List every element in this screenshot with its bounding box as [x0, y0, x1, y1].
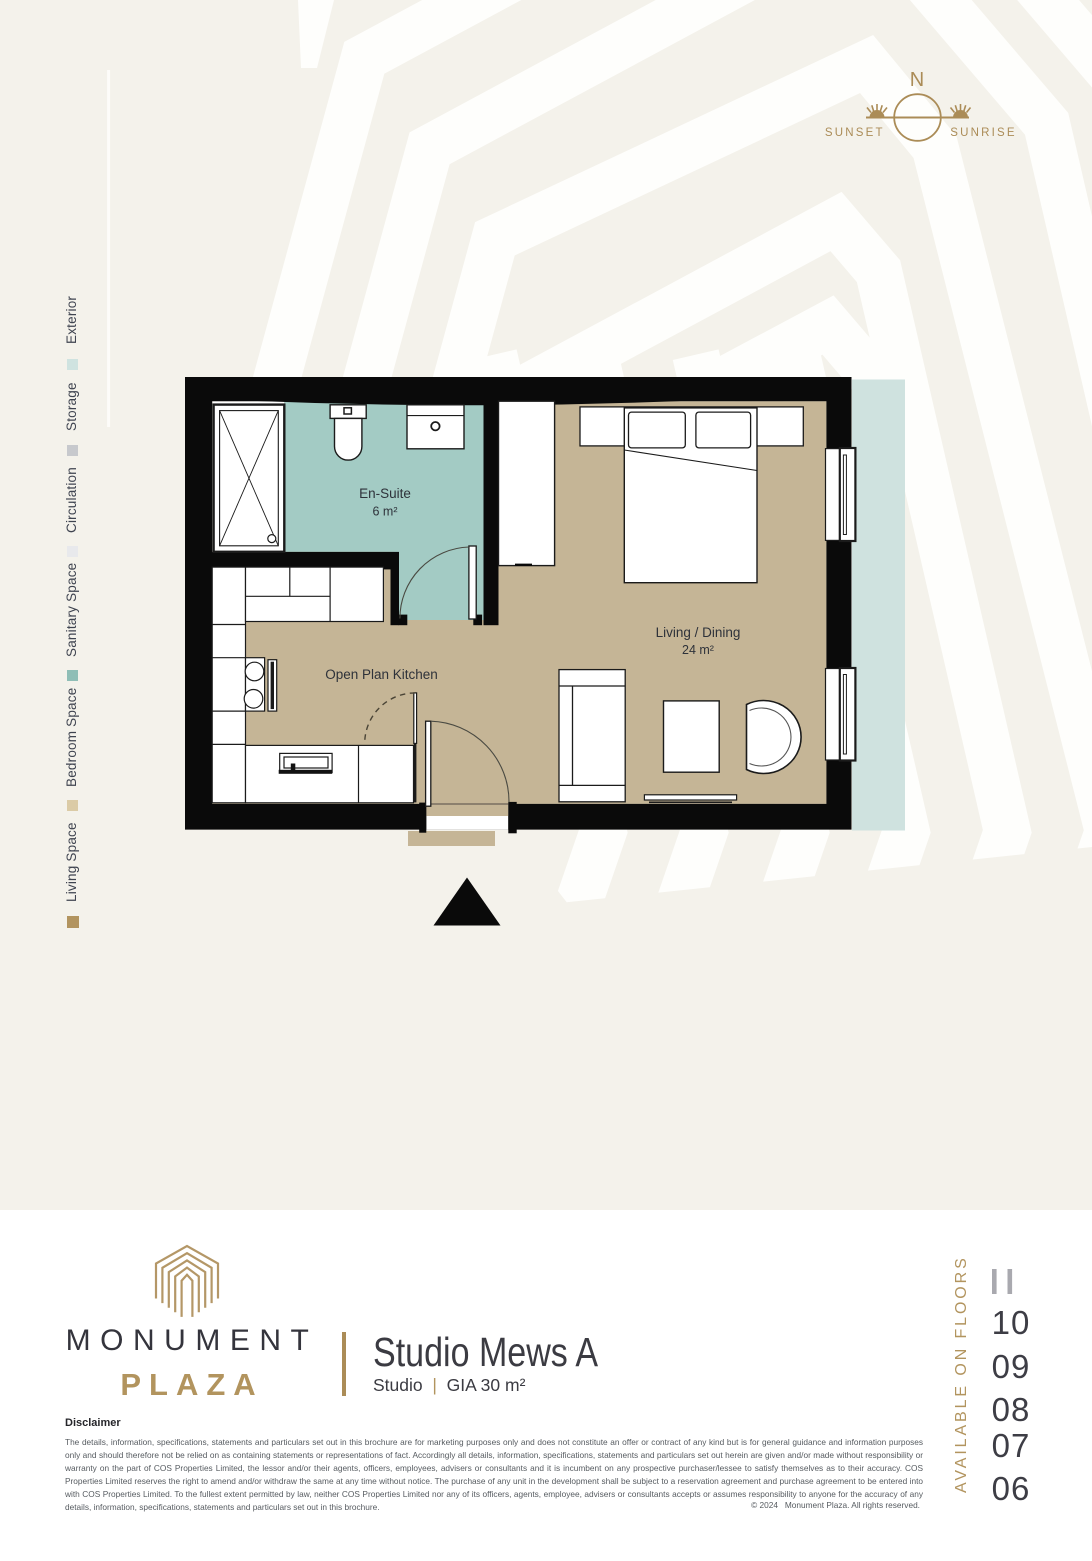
svg-text:N: N	[910, 69, 925, 91]
svg-text:En-Suite: En-Suite	[359, 486, 411, 501]
svg-text:24 m²: 24 m²	[682, 643, 714, 657]
svg-text:SUNRISE: SUNRISE	[950, 127, 1017, 139]
svg-text:SUNSET: SUNSET	[825, 127, 885, 139]
svg-text:Open Plan Kitchen: Open Plan Kitchen	[325, 667, 438, 682]
svg-text:Living / Dining: Living / Dining	[656, 625, 741, 640]
svg-text:6 m²: 6 m²	[373, 505, 398, 519]
